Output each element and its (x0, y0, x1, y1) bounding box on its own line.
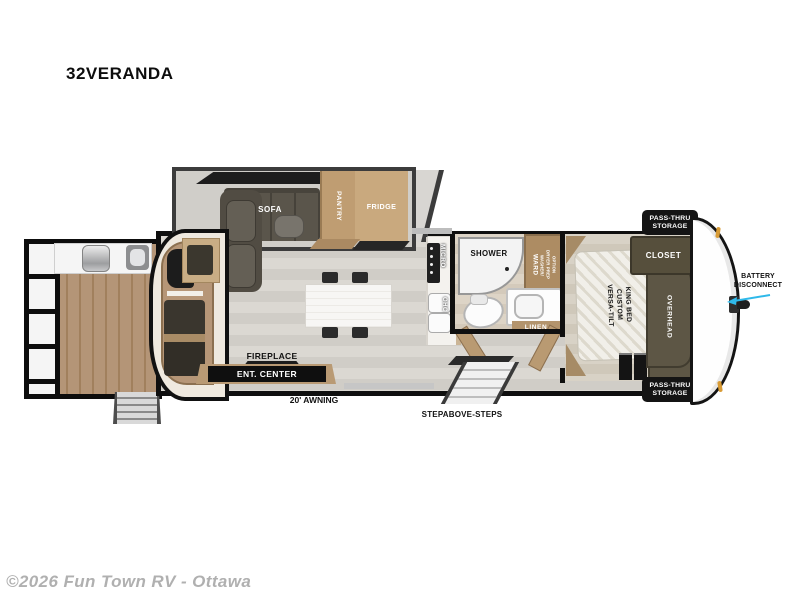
dining-chair (322, 272, 338, 283)
bedroom-wall (560, 368, 565, 383)
fridge-mat (352, 241, 410, 250)
microwave-label: MICRO (439, 244, 446, 288)
washer-label: WASHER/ (540, 255, 545, 276)
page-title: 32VERANDA (66, 64, 173, 84)
kitchen-sink (428, 293, 451, 313)
closet-label: CLOSET (646, 251, 681, 260)
bedroom-wall (560, 233, 565, 337)
pantry-label: PANTRY (335, 191, 342, 221)
pass-thru-top-line1: PASS-THRU (650, 215, 691, 223)
ottoman (274, 215, 304, 238)
dryer-prep-label: DRYER PREP (546, 250, 551, 279)
dining-table (305, 284, 392, 328)
awning-label: 20' AWNING (262, 395, 366, 405)
fridge: FRIDGE (355, 171, 408, 241)
rear-door-sill (167, 291, 203, 296)
option-label: OPTION (552, 256, 557, 273)
kitchen-sink (428, 313, 451, 333)
corner-cabinet-opening (187, 245, 213, 275)
deck-water-heater (82, 245, 110, 272)
sofa-label: SOFA (244, 205, 296, 214)
pass-thru-bottom-line2: STORAGE (653, 390, 688, 398)
bed-label-line1: VERSA-TILT (606, 284, 614, 327)
pass-thru-top-line2: STORAGE (653, 223, 688, 231)
window (344, 383, 434, 389)
dining-chair (352, 327, 368, 338)
rear-door-glass (164, 300, 205, 376)
steps-label: STEPABOVE-STEPS (404, 410, 520, 419)
wardrobe-washer-dryer-prep: WARD WASHER/ DRYER PREP OPTION (524, 234, 564, 296)
window (412, 228, 452, 234)
pass-thru-bottom-line1: PASS-THRU (650, 382, 691, 390)
fridge-label: FRIDGE (367, 202, 397, 211)
floorplan-page: 32VERANDA 20' AWNING SOFA PANTRY FRIDGE … (0, 0, 800, 600)
shower-label: SHOWER (461, 249, 517, 258)
wardrobe-label: WARD (532, 254, 539, 275)
battery-line1: BATTERY (720, 272, 796, 281)
bed-label-line3: KING BED (624, 287, 632, 323)
dining-chair (322, 327, 338, 338)
bed-label-line2: CUSTOM (615, 289, 623, 320)
cooktop-knobs (430, 247, 433, 250)
dining-chair (352, 272, 368, 283)
pantry-ramp (310, 239, 360, 249)
bathroom-wall (450, 329, 565, 334)
deck-sink-basin (130, 249, 145, 266)
entertainment-center-label: ENT. CENTER (237, 369, 297, 379)
battery-arrow-icon (726, 292, 774, 306)
overhead-label: OVERHEAD (666, 295, 673, 338)
pantry-cabinet: PANTRY (320, 171, 355, 241)
bathroom-wall (450, 233, 455, 334)
deck-steps (113, 392, 161, 424)
shower-drain (505, 267, 509, 271)
bedroom-unit (619, 353, 632, 380)
bathroom-sink (514, 294, 544, 319)
toilet-tank (470, 294, 488, 305)
closet: CLOSET (630, 236, 697, 275)
overhead-cabinet-label: OHC (441, 297, 447, 333)
entertainment-center: ENT. CENTER (208, 366, 326, 382)
sofa-cushion (226, 244, 256, 288)
fireplace-label: FIREPLACE (230, 351, 314, 361)
overhead-cabinet: OVERHEAD (646, 266, 692, 368)
battery-disconnect-label: BATTERY DISCONNECT (720, 272, 796, 291)
battery-line2: DISCONNECT (720, 281, 796, 290)
watermark: ©2026 Fun Town RV - Ottawa (6, 572, 251, 592)
